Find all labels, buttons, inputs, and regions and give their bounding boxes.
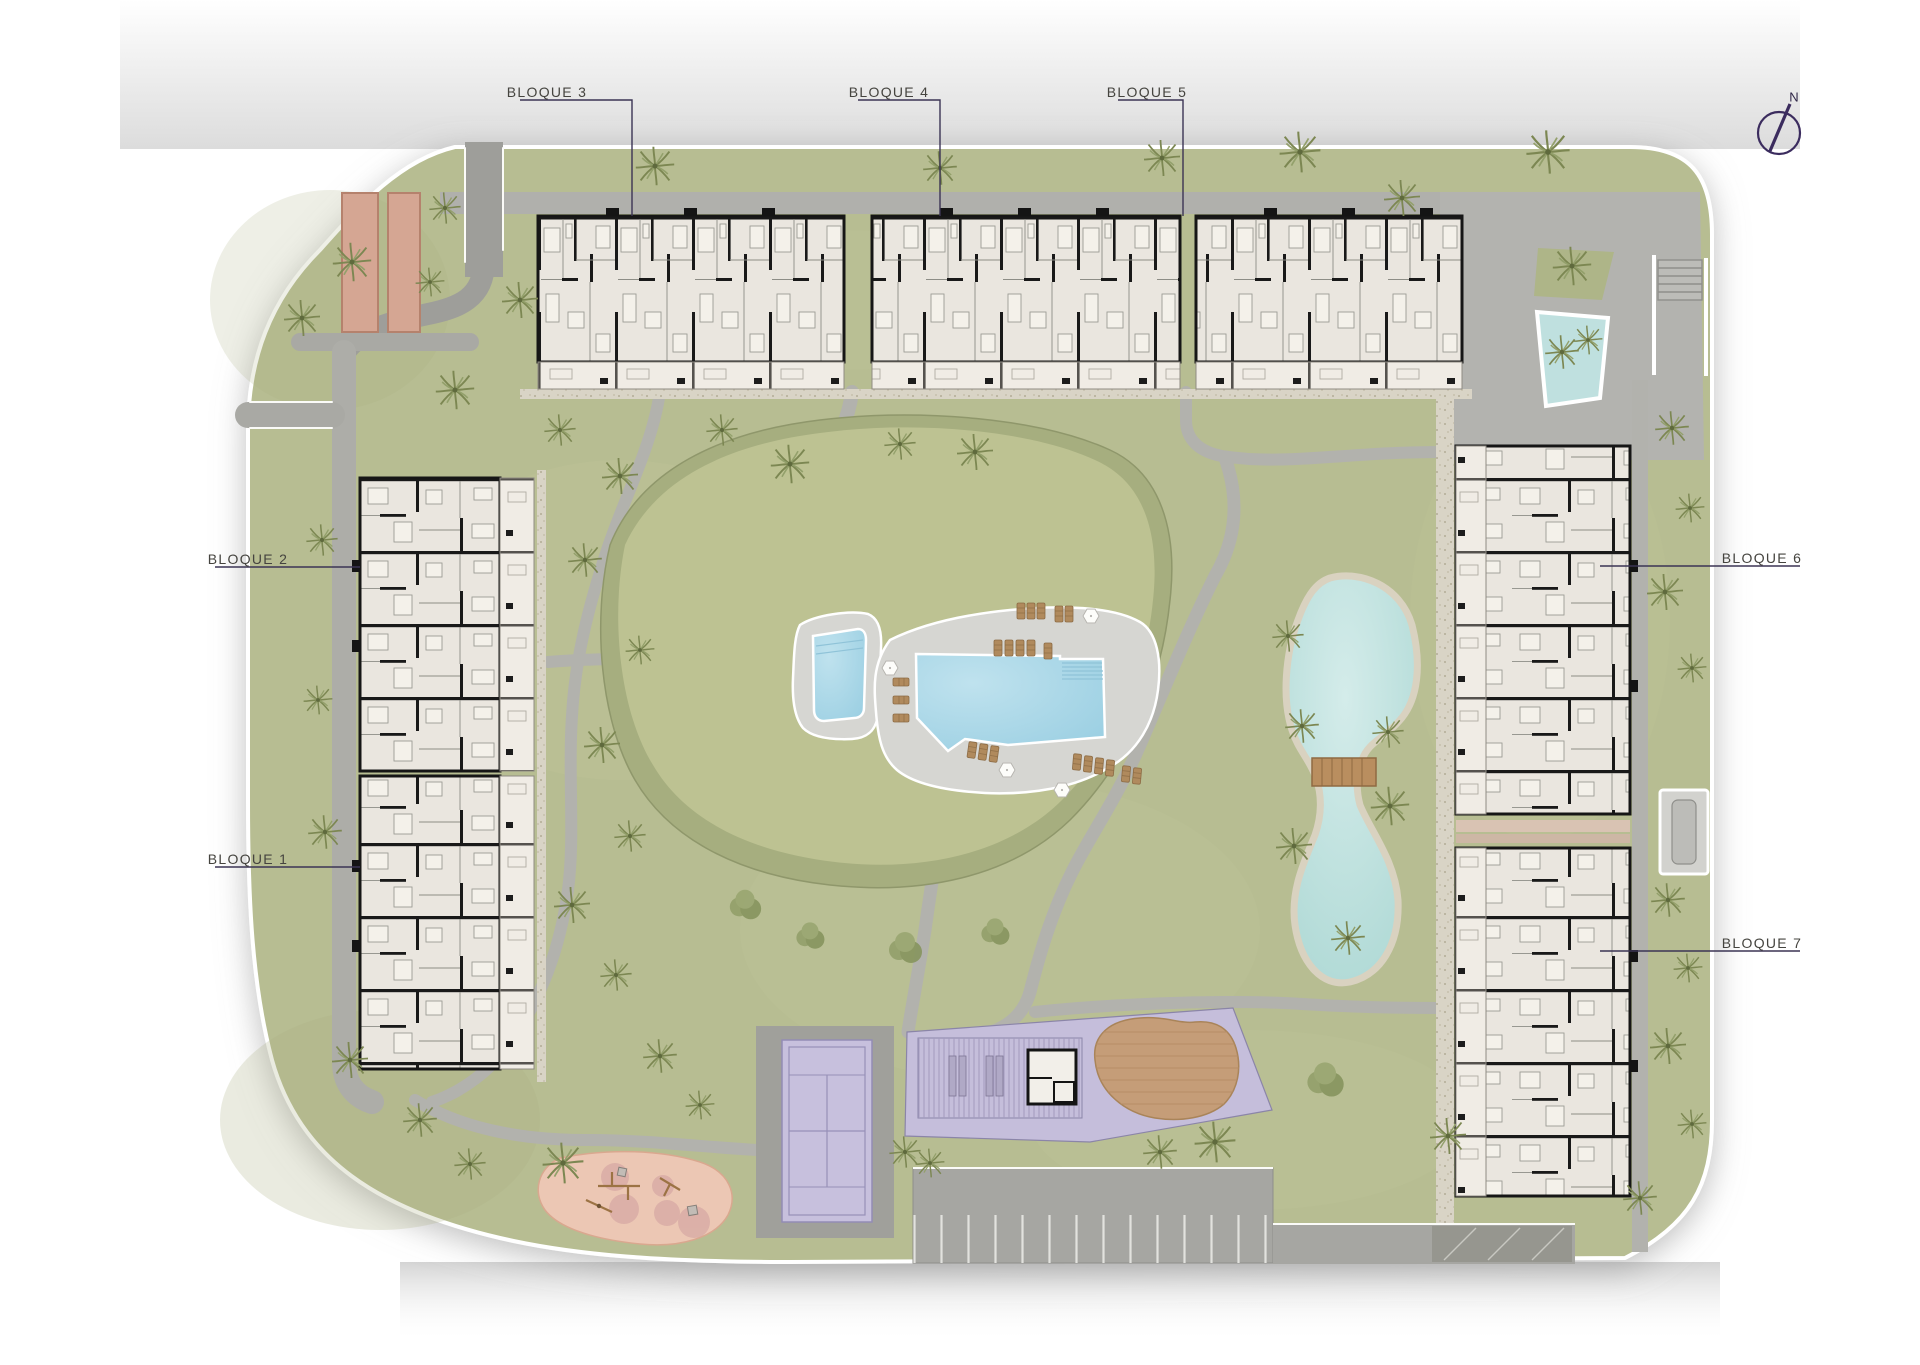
block-label-bloque-1: BLOQUE 1 [208, 851, 288, 867]
block-label-bloque-7: BLOQUE 7 [1722, 935, 1802, 951]
bloque-2-building [352, 478, 534, 771]
tennis-court [782, 1040, 872, 1222]
site-plan-canvas: BLOQUE 3 BLOQUE 4 BLOQUE 5 BLOQUE 2 BLOQ… [0, 0, 1920, 1365]
north-label: N [1789, 90, 1798, 105]
bloque-1-building [352, 776, 534, 1069]
utility-niche [1660, 790, 1708, 874]
site-plan-drawing [0, 0, 1920, 1365]
block-label-bloque-2: BLOQUE 2 [208, 551, 288, 567]
entrance-gate-zone [1432, 1226, 1572, 1262]
bloque-6-building [1456, 446, 1638, 814]
club-building [1028, 1050, 1076, 1104]
bottom-shadow-band [400, 1262, 1720, 1342]
main-pool [916, 654, 1105, 751]
bloque-7-building [1456, 848, 1638, 1196]
bloque-5-building [1196, 208, 1462, 389]
bloque-6-7-link [1456, 820, 1630, 843]
bloque-4-building [872, 208, 1180, 389]
lake-bridge [1312, 758, 1376, 786]
stairs [1658, 260, 1702, 300]
block-label-bloque-5: BLOQUE 5 [1107, 84, 1187, 100]
bloque-3-building [538, 208, 844, 389]
block-label-bloque-6: BLOQUE 6 [1722, 550, 1802, 566]
block-label-bloque-4: BLOQUE 4 [849, 84, 929, 100]
top-shadow-band [120, 0, 1800, 149]
block-label-bloque-3: BLOQUE 3 [507, 84, 587, 100]
